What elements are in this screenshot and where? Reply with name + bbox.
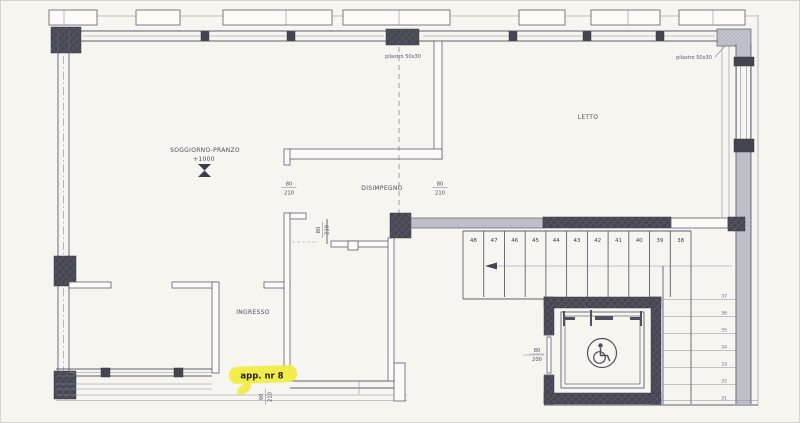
dim-denominator: 210 bbox=[325, 225, 331, 235]
dim-door-entrance: 90 210 bbox=[259, 389, 274, 405]
dim-door-soggiorno: 80 210 bbox=[282, 182, 297, 197]
stair-number: 47 bbox=[491, 238, 498, 244]
stair-number: 42 bbox=[594, 238, 601, 244]
stair-number: 44 bbox=[553, 238, 560, 244]
pillar-label-right: pilastro 50x30 bbox=[676, 55, 712, 61]
stair-number: 35 bbox=[721, 328, 727, 334]
dim-numerator: 80 bbox=[286, 182, 293, 188]
dim-numerator: 80 bbox=[437, 182, 444, 188]
stair-number: 37 bbox=[721, 294, 727, 300]
dim-denominator: 210 bbox=[435, 191, 445, 197]
stair-direction-arrow bbox=[485, 263, 497, 270]
stair-number: 48 bbox=[470, 238, 477, 244]
apartment-highlight: app. nr 8 bbox=[229, 365, 298, 397]
pillar-top-right bbox=[717, 29, 751, 46]
floor-plan-drawing: 48 47 46 45 44 43 42 41 40 39 38 37 36 3… bbox=[1, 1, 800, 423]
stair-number: 40 bbox=[636, 238, 643, 244]
room-label-soggiorno: SOGGIORNO-PRANZO bbox=[170, 147, 240, 154]
dim-numerator: 80 bbox=[534, 348, 541, 354]
room-label-letto: LETTO bbox=[578, 114, 599, 121]
stair-number: 43 bbox=[574, 238, 581, 244]
stair-number: 34 bbox=[721, 345, 727, 351]
room-label-disimpegno: DISIMPEGNO bbox=[361, 185, 402, 192]
level-marker-icon bbox=[198, 164, 211, 177]
dim-numerator: 80 bbox=[316, 227, 322, 234]
pillar-label-top: pilastro 50x30 bbox=[385, 54, 421, 60]
floor-plan-canvas: 48 47 46 45 44 43 42 41 40 39 38 37 36 3… bbox=[0, 0, 800, 423]
level-mark: +1000 bbox=[193, 156, 215, 163]
elevator-shaft bbox=[523, 297, 661, 404]
room-labels: SOGGIORNO-PRANZO +1000 DISIMPEGNO LETTO … bbox=[170, 46, 725, 316]
stair-number: 46 bbox=[511, 238, 518, 244]
stair-number: 45 bbox=[532, 238, 539, 244]
dim-door-hall: 80 210 bbox=[316, 222, 331, 238]
stair-number: 38 bbox=[677, 238, 684, 244]
stair-number: 32 bbox=[721, 379, 727, 385]
stair-number: 33 bbox=[721, 362, 727, 368]
stair-number: 36 bbox=[721, 311, 727, 317]
dim-door-letto: 80 210 bbox=[433, 182, 448, 197]
dim-denominator: 200 bbox=[532, 357, 542, 363]
dim-denominator: 210 bbox=[284, 191, 294, 197]
pillar-hall bbox=[390, 213, 411, 238]
pillar-top-left bbox=[51, 27, 81, 53]
wheelchair-icon bbox=[588, 339, 617, 368]
dim-door-elevator: 80 200 bbox=[530, 348, 545, 363]
dim-numerator: 90 bbox=[259, 394, 265, 401]
stair-number: 39 bbox=[656, 238, 663, 244]
stair-number: 31 bbox=[721, 396, 727, 402]
stair-number: 41 bbox=[615, 238, 622, 244]
pillar-top-center bbox=[386, 29, 419, 45]
apartment-number-label: app. nr 8 bbox=[240, 372, 283, 382]
room-label-ingresso: INGRESSO bbox=[236, 309, 270, 316]
dim-denominator: 210 bbox=[268, 392, 274, 402]
